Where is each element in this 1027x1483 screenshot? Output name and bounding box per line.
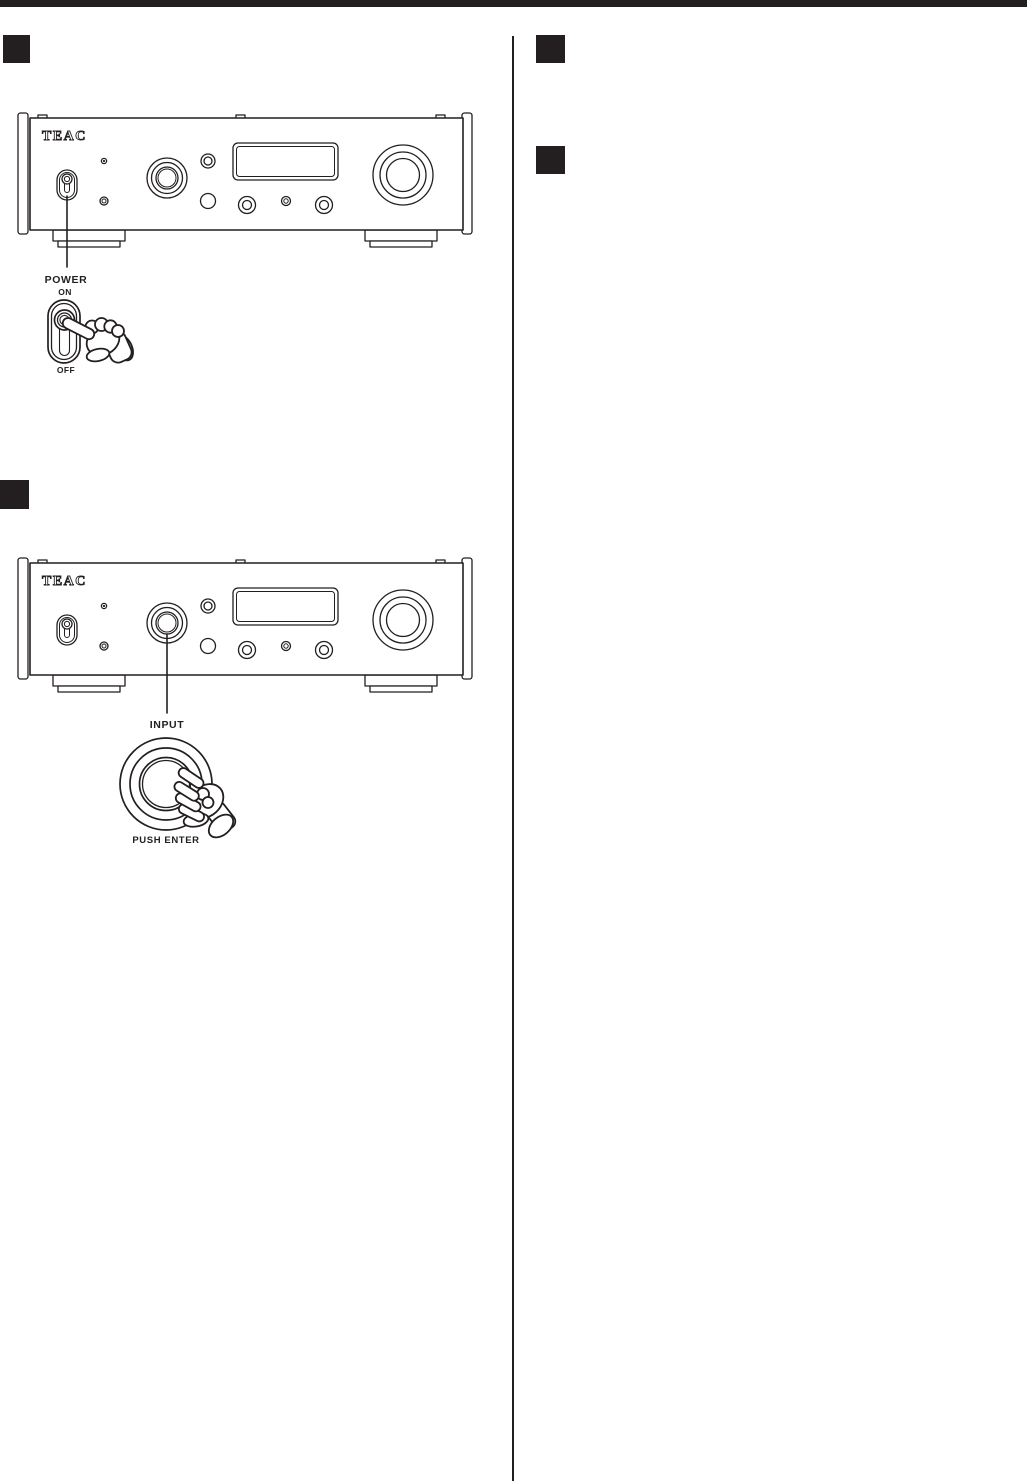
pointing-hand-icon (61, 316, 137, 365)
gripping-hand-icon (173, 766, 238, 842)
device-front-panel-step2: INPUT PUSH ENT (15, 555, 475, 852)
step-marker-4 (536, 146, 565, 174)
column-divider (512, 36, 514, 1481)
device-foot-right (365, 230, 437, 241)
step-marker-1 (3, 35, 30, 63)
on-label: ON (58, 287, 72, 297)
device-foot-right-pad (370, 241, 432, 247)
brand-logo: TEAC (42, 129, 87, 144)
input-knob-illustration: INPUT PUSH ENT (15, 555, 475, 852)
device-foot-left (53, 230, 125, 241)
step-marker-2 (0, 480, 29, 509)
manual-page: TEAC (0, 0, 1027, 1483)
remote-sensor-dot (103, 160, 105, 162)
power-switch-illustration: TEAC (15, 110, 475, 382)
off-label: OFF (57, 365, 75, 375)
step-marker-3 (536, 35, 565, 63)
rack-ear-left (18, 113, 28, 234)
power-label: POWER (45, 274, 88, 286)
device-front-panel-step1: TEAC (15, 110, 475, 382)
input-label: INPUT (150, 719, 185, 731)
device-front-panel-drawing: TEAC (18, 113, 472, 247)
push-enter-label: PUSH ENTER (132, 835, 199, 846)
page-header-bar (0, 0, 1027, 7)
